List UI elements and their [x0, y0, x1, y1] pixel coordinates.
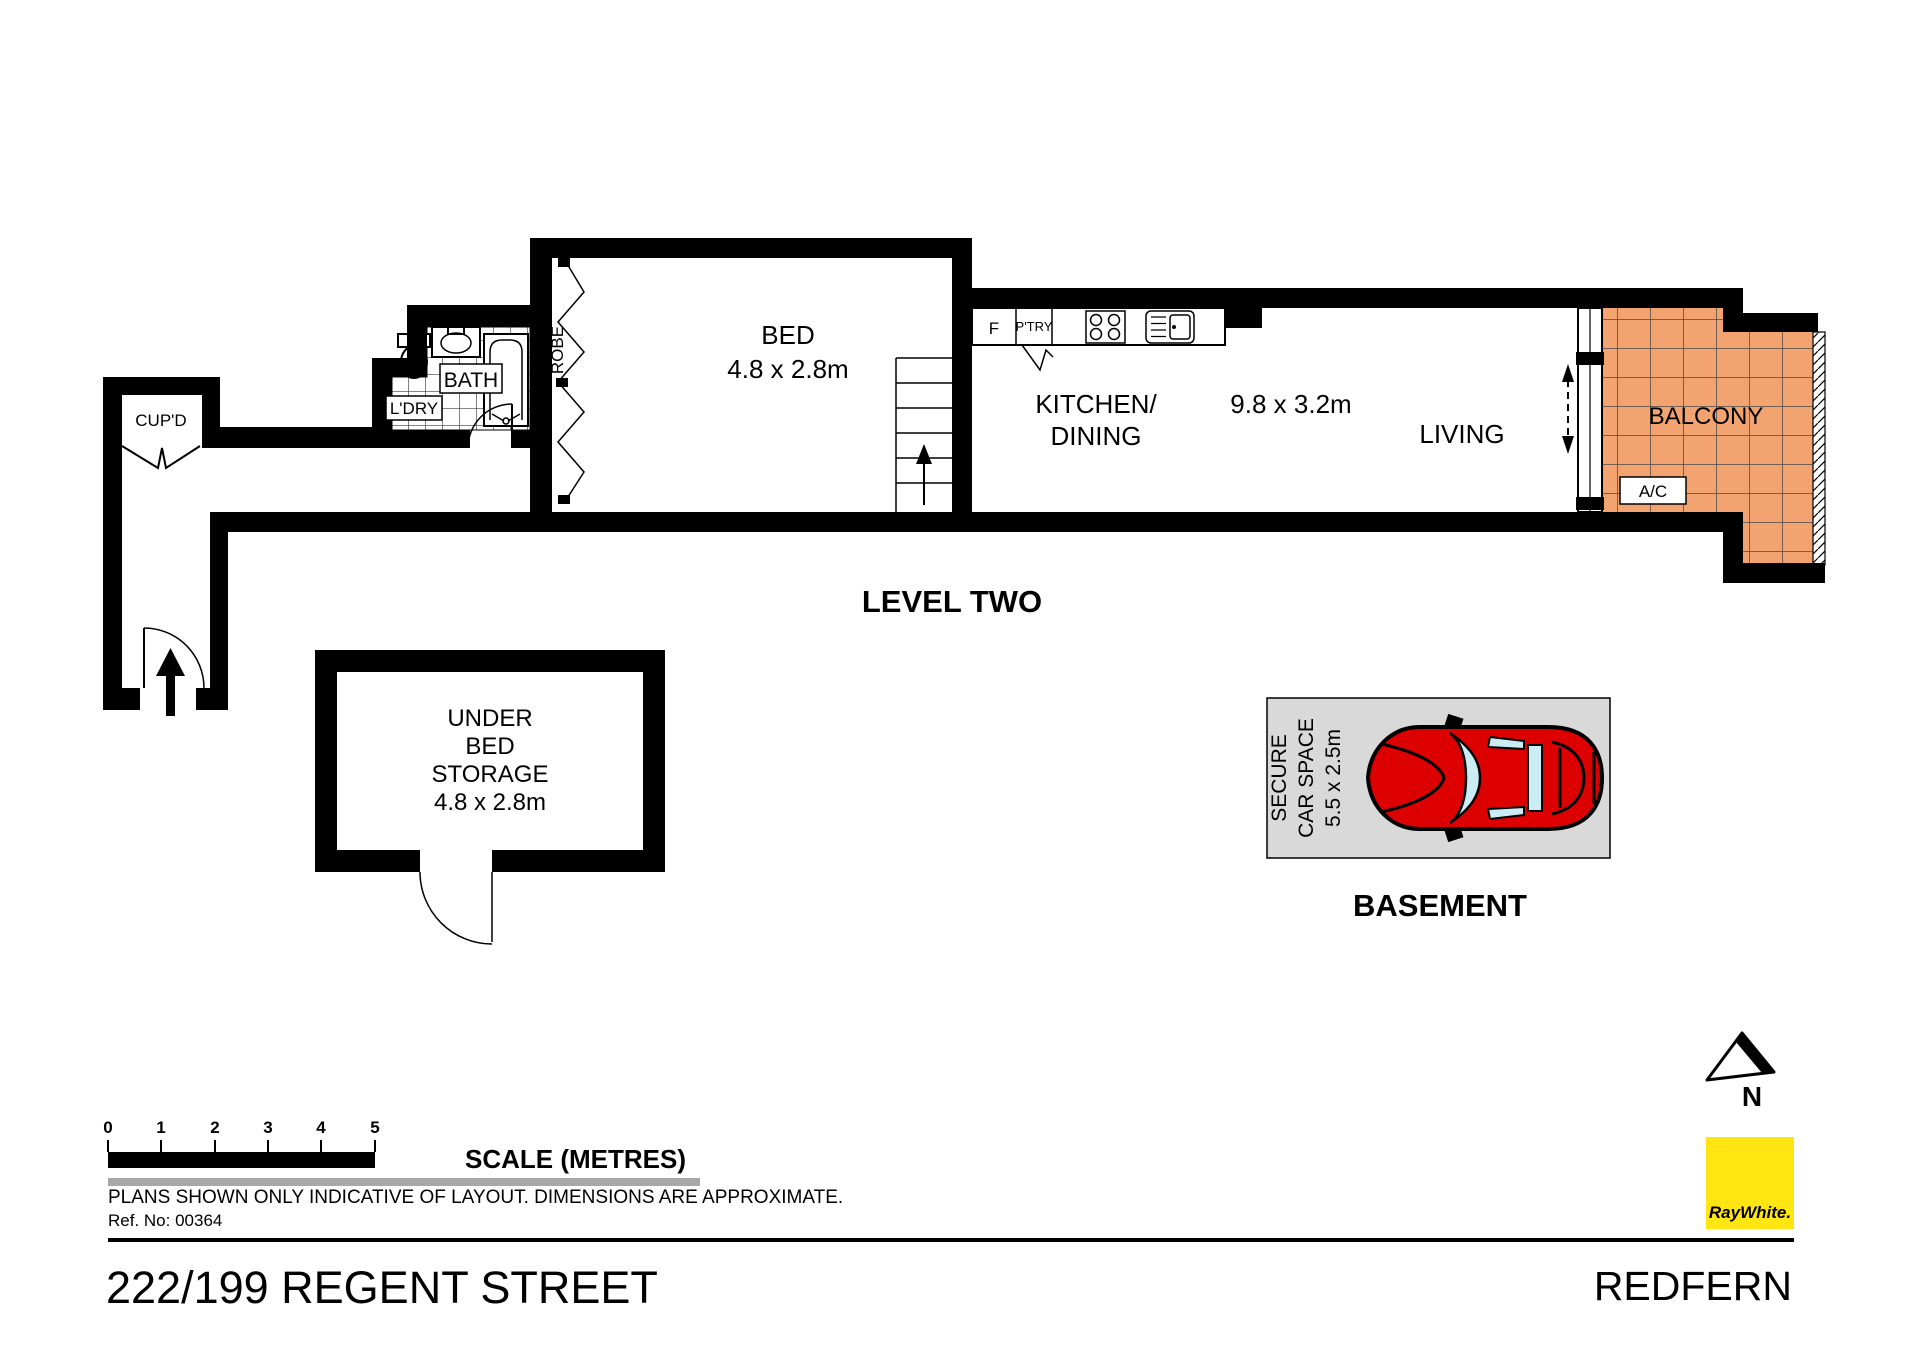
pantry-label: P'TRY [1016, 319, 1053, 334]
svg-text:L'DRY: L'DRY [390, 399, 438, 418]
stairs [896, 358, 952, 512]
svg-text:BATH: BATH [444, 369, 498, 392]
floorplan-page: A/C CUP'D L'DRY BATH ROBE BED 4.8 x 2.8m… [0, 0, 1920, 1358]
under-bed-storage-room: UNDER BED STORAGE 4.8 x 2.8m [315, 650, 665, 944]
storage-door [420, 872, 492, 944]
ac-unit: A/C [1620, 477, 1686, 504]
floorplan-canvas: A/C CUP'D L'DRY BATH ROBE BED 4.8 x 2.8m… [0, 0, 1920, 1358]
scale-tick-2: 2 [210, 1118, 219, 1137]
storage-label-1: UNDER [447, 705, 532, 732]
kitchen-sink-icon [1146, 311, 1194, 343]
property-address: 222/199 REGENT STREET [106, 1262, 658, 1313]
scale-tick-1: 1 [156, 1118, 165, 1137]
ac-label: A/C [1639, 482, 1667, 501]
gray-divider-bar [108, 1178, 700, 1186]
cupboard-bifold-door [122, 446, 200, 468]
car-space-text: SECURE CAR SPACE 5.5 x 2.5m [1268, 718, 1345, 838]
kitchen-dimensions: 9.8 x 3.2m [1230, 389, 1351, 419]
raywhite-logo-text: RayWhite. [1709, 1203, 1791, 1222]
north-label: N [1742, 1081, 1762, 1112]
footer-rule [108, 1238, 1794, 1242]
fridge-label: F [989, 319, 999, 338]
storage-label-3: STORAGE [432, 761, 549, 788]
raywhite-logo: RayWhite. [1706, 1137, 1794, 1229]
north-arrow-icon: N [1707, 1033, 1774, 1112]
room-label-living: LIVING [1419, 419, 1504, 449]
level-two-plan: A/C CUP'D L'DRY BATH ROBE BED 4.8 x 2.8m… [103, 238, 1825, 716]
room-label-kitchen-1: KITCHEN/ [1035, 389, 1157, 419]
scale-tick-5: 5 [370, 1118, 379, 1137]
room-label-cupboard: CUP'D [135, 411, 186, 430]
balcony-sliding-door [1576, 308, 1604, 512]
room-label-bath: BATH [440, 364, 502, 393]
walls [103, 238, 1825, 710]
room-label-kitchen-2: DINING [1051, 421, 1142, 451]
scale-tick-0: 0 [103, 1118, 112, 1137]
basement-title: BASEMENT [1353, 888, 1527, 923]
car-icon [1368, 714, 1602, 842]
svg-text:SECURE: SECURE [1268, 734, 1291, 822]
scale-label: SCALE (METRES) [465, 1144, 686, 1174]
scale-tick-4: 4 [316, 1118, 326, 1137]
stairs-up-arrow-icon [916, 444, 932, 464]
svg-text:CAR SPACE: CAR SPACE [1295, 718, 1318, 838]
level-two-title: LEVEL TWO [862, 584, 1042, 619]
sink-icon [432, 327, 480, 357]
kitchen-counter [972, 308, 1225, 370]
property-suburb: REDFERN [1594, 1263, 1792, 1309]
balcony-railing [1813, 332, 1825, 565]
scale-tick-3: 3 [263, 1118, 272, 1137]
room-label-bed: BED [761, 320, 814, 350]
sliding-direction-arrows-icon [1562, 364, 1574, 454]
ref-number: Ref. No: 00364 [108, 1211, 222, 1230]
room-label-laundry: L'DRY [386, 396, 442, 420]
room-label-balcony: BALCONY [1649, 403, 1764, 430]
disclaimer-text: PLANS SHOWN ONLY INDICATIVE OF LAYOUT. D… [108, 1187, 843, 1208]
room-label-robe: ROBE [548, 326, 567, 374]
entry-arrow-icon [156, 648, 185, 716]
robe-rail-icon [556, 258, 584, 504]
svg-text:5.5 x 2.5m: 5.5 x 2.5m [1322, 729, 1345, 827]
storage-dimensions: 4.8 x 2.8m [434, 789, 546, 816]
basement-car-space: SECURE CAR SPACE 5.5 x 2.5m BASEMENT [1267, 698, 1610, 923]
scale-bar: 0 1 2 3 4 5 SCALE (METRES) [103, 1118, 700, 1186]
cooktop-icon [1086, 311, 1125, 343]
pantry-door [1022, 345, 1053, 370]
bed-dimensions: 4.8 x 2.8m [727, 354, 848, 384]
storage-label-2: BED [465, 733, 514, 760]
